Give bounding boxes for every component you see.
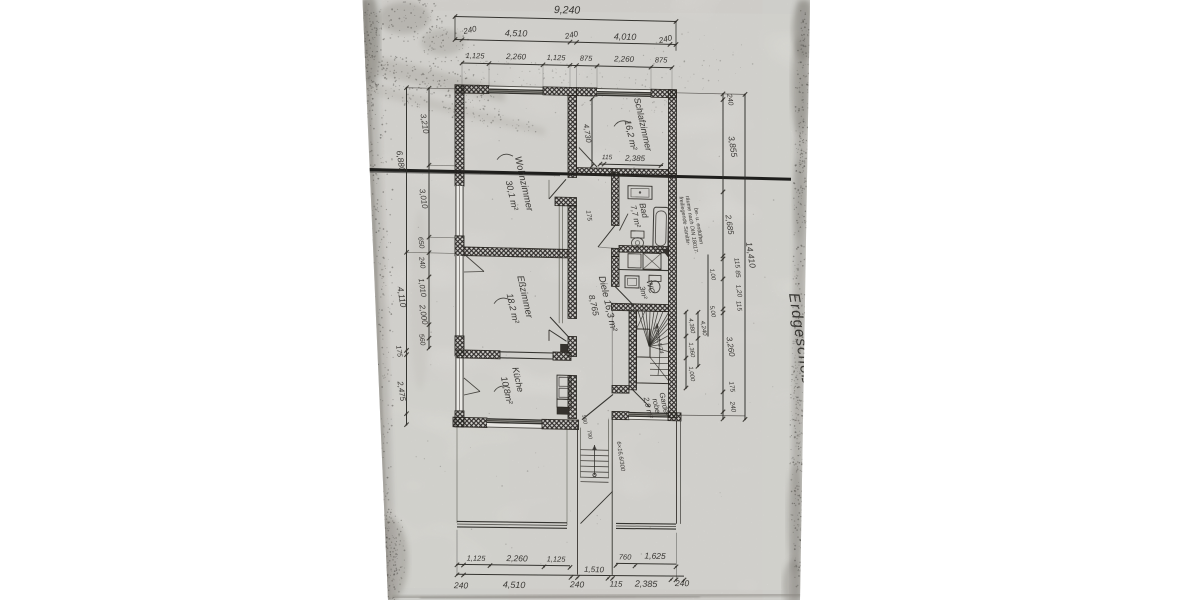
svg-text:1,125: 1,125 (547, 554, 567, 563)
svg-text:760: 760 (619, 552, 633, 561)
svg-text:2,260: 2,260 (505, 52, 527, 61)
svg-text:115: 115 (602, 154, 613, 161)
svg-text:9,240: 9,240 (554, 4, 581, 17)
svg-text:2,260: 2,260 (505, 553, 528, 564)
svg-text:4,510: 4,510 (505, 28, 528, 39)
svg-text:1,125: 1,125 (467, 553, 487, 562)
svg-text:240: 240 (453, 580, 469, 590)
svg-text:1,625: 1,625 (644, 551, 666, 561)
svg-text:2,260: 2,260 (613, 54, 635, 63)
svg-text:875: 875 (655, 55, 669, 64)
svg-text:875: 875 (580, 54, 594, 63)
svg-text:1,125: 1,125 (466, 51, 486, 60)
svg-text:2,385: 2,385 (624, 154, 646, 163)
svg-text:240: 240 (569, 579, 585, 589)
svg-text:115: 115 (610, 579, 624, 588)
svg-text:1,125: 1,125 (547, 53, 567, 62)
svg-text:85: 85 (733, 270, 741, 279)
svg-text:2,385: 2,385 (634, 579, 659, 590)
svg-text:1,510: 1,510 (584, 565, 605, 574)
svg-text:4,510: 4,510 (503, 580, 526, 591)
svg-text:4,010: 4,010 (614, 31, 637, 42)
